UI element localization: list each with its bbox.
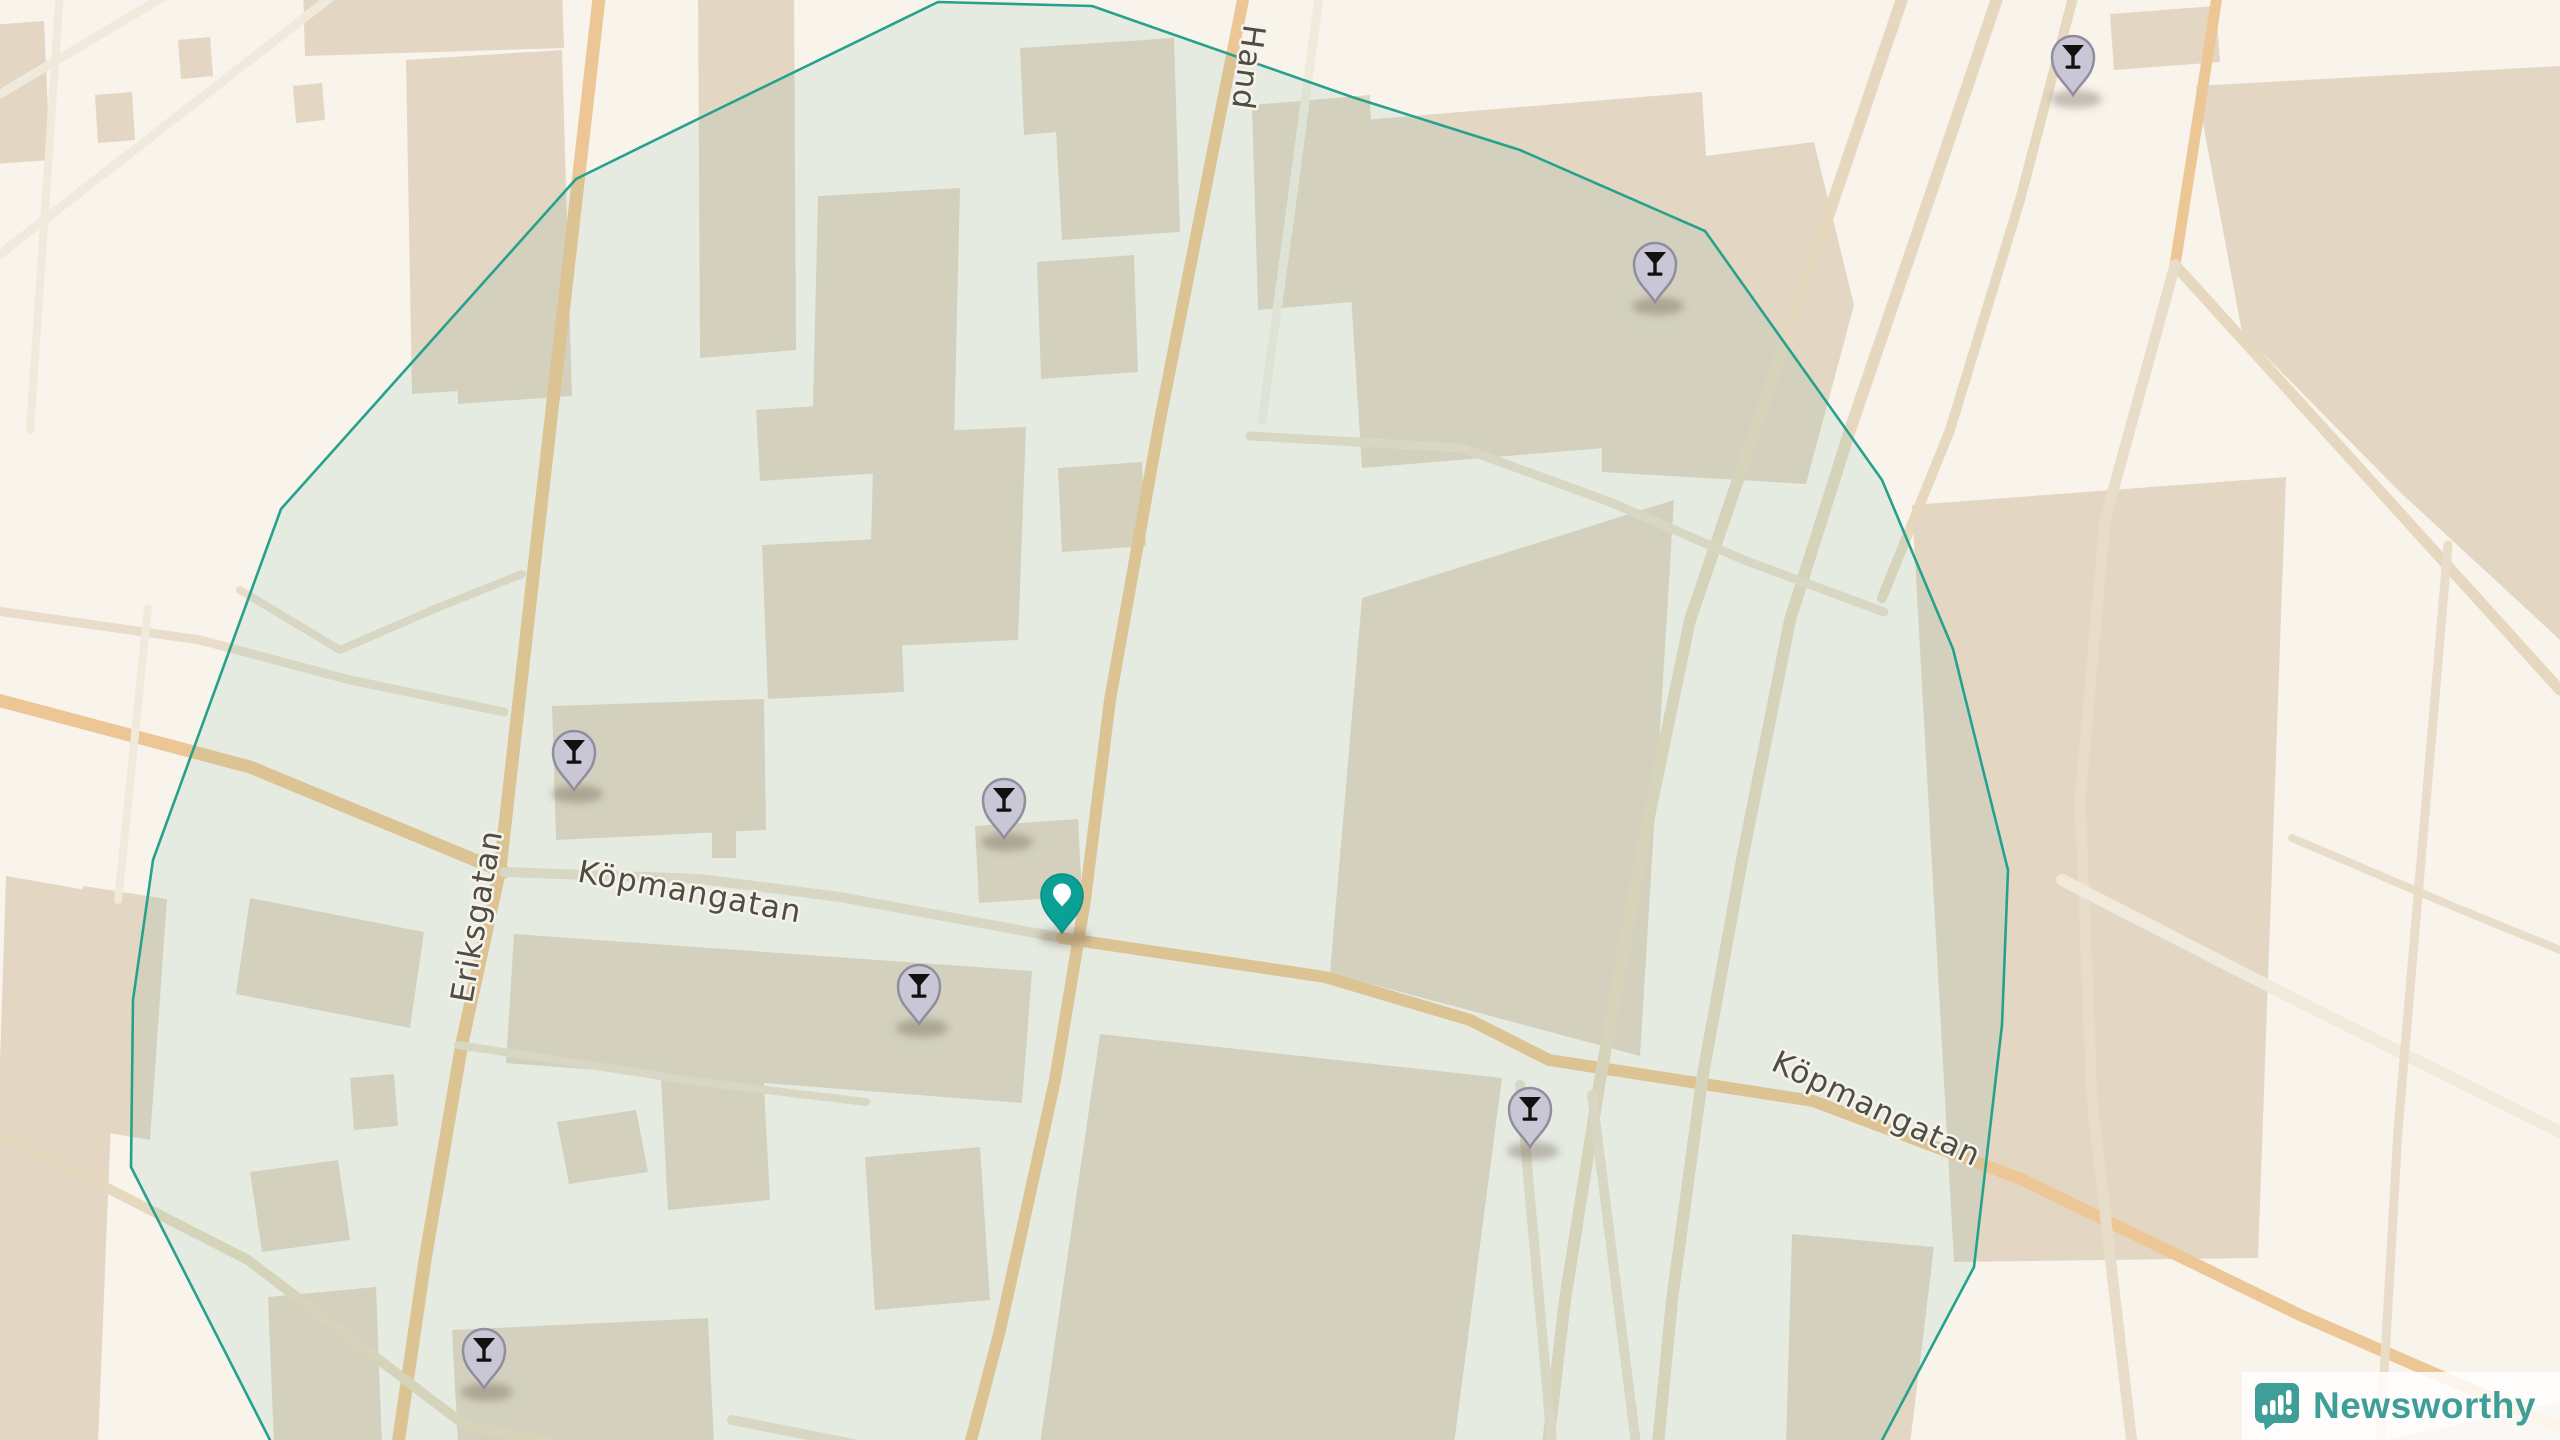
attribution-bar[interactable]: Newsworthy	[2242, 1372, 2560, 1440]
building	[178, 37, 213, 79]
newsworthy-logo-icon	[2254, 1382, 2300, 1430]
newsworthy-logo-text: Newsworthy	[2313, 1385, 2536, 1427]
building	[303, 0, 564, 56]
pin-shadow	[1039, 928, 1091, 946]
building	[293, 83, 325, 123]
building	[95, 92, 135, 143]
map-canvas[interactable]: EriksgatanKöpmangatanKöpmangatanHand	[0, 0, 2560, 1440]
map-stage: EriksgatanKöpmangatanKöpmangatanHand New…	[0, 0, 2560, 1440]
